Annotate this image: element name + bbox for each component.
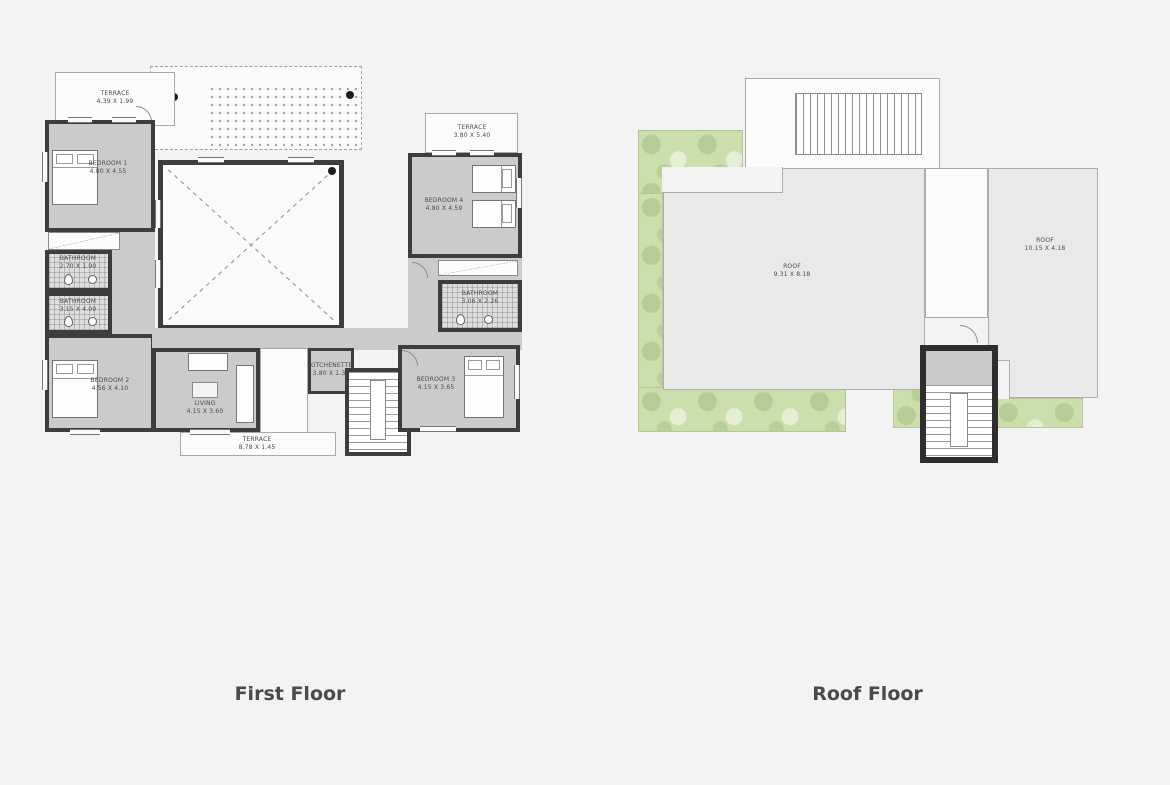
sink-icon bbox=[484, 315, 493, 324]
roof-stair-enclosure bbox=[920, 345, 998, 463]
window bbox=[198, 157, 224, 163]
sofa-icon bbox=[188, 353, 228, 371]
room-dims: 4.80 X 4.59 bbox=[425, 205, 464, 213]
stair-center bbox=[950, 393, 968, 447]
bed-icon bbox=[472, 200, 516, 228]
green-planting bbox=[638, 387, 846, 432]
pillow-icon bbox=[502, 204, 512, 223]
room-label-bedroom-2: BEDROOM 2 4.56 X 4.10 bbox=[91, 377, 130, 393]
first-floor-plan: TERRACE 4.39 X 1.99 BEDROOM 1 4.80 X 4.5… bbox=[40, 60, 540, 465]
column-dot bbox=[346, 91, 354, 99]
room-name: BATHROOM bbox=[462, 290, 498, 297]
room-name: TERRACE bbox=[101, 90, 130, 97]
bed-icon bbox=[464, 356, 504, 418]
louver-slats-icon bbox=[795, 93, 922, 155]
courtyard-cross-lines bbox=[163, 165, 339, 325]
room-label-terrace-nw: TERRACE 4.39 X 1.99 bbox=[97, 90, 134, 106]
bed-icon bbox=[52, 150, 98, 205]
room-label-bathroom-b: BATHROOM 3.15 X 4.00 bbox=[60, 298, 97, 314]
bed-icon bbox=[472, 165, 516, 193]
room-label-roof-right: ROOF 10.15 X 4.18 bbox=[1025, 237, 1066, 253]
window bbox=[70, 429, 100, 435]
window bbox=[68, 117, 92, 123]
room-bathroom-c bbox=[438, 280, 522, 332]
pillow-icon bbox=[56, 154, 73, 164]
window bbox=[420, 426, 456, 432]
window bbox=[470, 150, 494, 156]
roof-slab-notch bbox=[662, 167, 783, 193]
courtyard-void bbox=[158, 160, 344, 330]
sink-icon bbox=[88, 317, 97, 326]
room-name: BATHROOM bbox=[60, 255, 96, 262]
window bbox=[155, 260, 161, 288]
sheet-canvas: TERRACE 4.39 X 1.99 BEDROOM 1 4.80 X 4.5… bbox=[0, 0, 1170, 785]
room-dims: 4.39 X 1.99 bbox=[97, 98, 134, 106]
patio-void bbox=[260, 348, 308, 444]
room-dims: 8.78 X 1.45 bbox=[239, 444, 276, 452]
window bbox=[516, 178, 522, 208]
roof-slab-main bbox=[663, 168, 925, 390]
column-dot bbox=[328, 167, 336, 175]
closet bbox=[438, 260, 518, 276]
room-name: BEDROOM 1 bbox=[89, 160, 128, 167]
pillow-icon bbox=[77, 364, 94, 374]
first-floor-title: First Floor bbox=[40, 683, 540, 705]
window bbox=[42, 360, 48, 390]
room-dims: 3.80 X 5.40 bbox=[454, 132, 491, 140]
pergola-louver-dots bbox=[208, 85, 358, 146]
room-dims: 10.15 X 4.18 bbox=[1025, 245, 1066, 253]
room-name: ROOF bbox=[783, 263, 801, 270]
pillow-icon bbox=[468, 360, 482, 370]
room-dims: 4.56 X 4.10 bbox=[91, 385, 130, 393]
room-dims: 2.70 X 1.90 bbox=[60, 263, 97, 271]
sink-icon bbox=[88, 275, 97, 284]
room-name: BATHROOM bbox=[60, 298, 96, 305]
window bbox=[190, 429, 230, 435]
room-name: LIVING bbox=[194, 400, 215, 407]
closet bbox=[48, 232, 120, 250]
toilet-icon bbox=[64, 274, 73, 285]
room-dims: 4.80 X 4.55 bbox=[89, 168, 128, 176]
room-label-terrace-ne: TERRACE 3.80 X 5.40 bbox=[454, 124, 491, 140]
room-label-bedroom-1: BEDROOM 1 4.80 X 4.55 bbox=[89, 160, 128, 176]
pillow-icon bbox=[486, 360, 500, 370]
corridor bbox=[152, 328, 412, 350]
roof-walkway bbox=[925, 168, 988, 318]
roof-floor-title: Roof Floor bbox=[630, 683, 1105, 705]
room-dims: 3.06 X 2.26 bbox=[462, 298, 499, 306]
stair-landing bbox=[926, 351, 992, 385]
room-name: BEDROOM 2 bbox=[91, 377, 130, 384]
window bbox=[112, 117, 136, 123]
room-dims: 4.15 X 3.65 bbox=[417, 384, 456, 392]
toilet-icon bbox=[64, 316, 73, 327]
room-name: BEDROOM 3 bbox=[417, 376, 456, 383]
pillow-icon bbox=[56, 364, 73, 374]
room-name: TERRACE bbox=[458, 124, 487, 131]
room-name: ROOF bbox=[1036, 237, 1054, 244]
toilet-icon bbox=[456, 314, 465, 325]
room-label-bathroom-a: BATHROOM 2.70 X 1.90 bbox=[60, 255, 97, 271]
roof-floor-plan: ROOF 9.31 X 8.18 ROOF 10.15 X 4.18 Roof … bbox=[630, 75, 1105, 470]
room-name: BEDROOM 4 bbox=[425, 197, 464, 204]
sofa-icon bbox=[236, 365, 254, 423]
window bbox=[288, 157, 314, 163]
room-dims: 4.15 X 3.60 bbox=[187, 408, 224, 416]
window bbox=[432, 150, 456, 156]
door-arc bbox=[960, 325, 978, 343]
room-label-bedroom-3: BEDROOM 3 4.15 X 3.65 bbox=[417, 376, 456, 392]
pillow-icon bbox=[502, 169, 512, 188]
window bbox=[42, 152, 48, 182]
room-label-roof-main: ROOF 9.31 X 8.18 bbox=[774, 263, 811, 279]
stair-landing bbox=[370, 380, 386, 440]
room-label-bathroom-c: BATHROOM 3.06 X 2.26 bbox=[462, 290, 499, 306]
window bbox=[155, 200, 161, 228]
room-label-terrace-south: TERRACE 8.78 X 1.45 bbox=[239, 436, 276, 452]
room-dims: 9.31 X 8.18 bbox=[774, 271, 811, 279]
coffee-table-icon bbox=[192, 382, 218, 398]
green-planting bbox=[995, 398, 1083, 428]
room-label-living: LIVING 4.15 X 3.60 bbox=[187, 400, 224, 416]
room-dims: 3.15 X 4.00 bbox=[60, 306, 97, 314]
green-planting bbox=[638, 193, 663, 390]
window bbox=[514, 365, 520, 399]
room-label-bedroom-4: BEDROOM 4 4.80 X 4.59 bbox=[425, 197, 464, 213]
room-name: TERRACE bbox=[243, 436, 272, 443]
